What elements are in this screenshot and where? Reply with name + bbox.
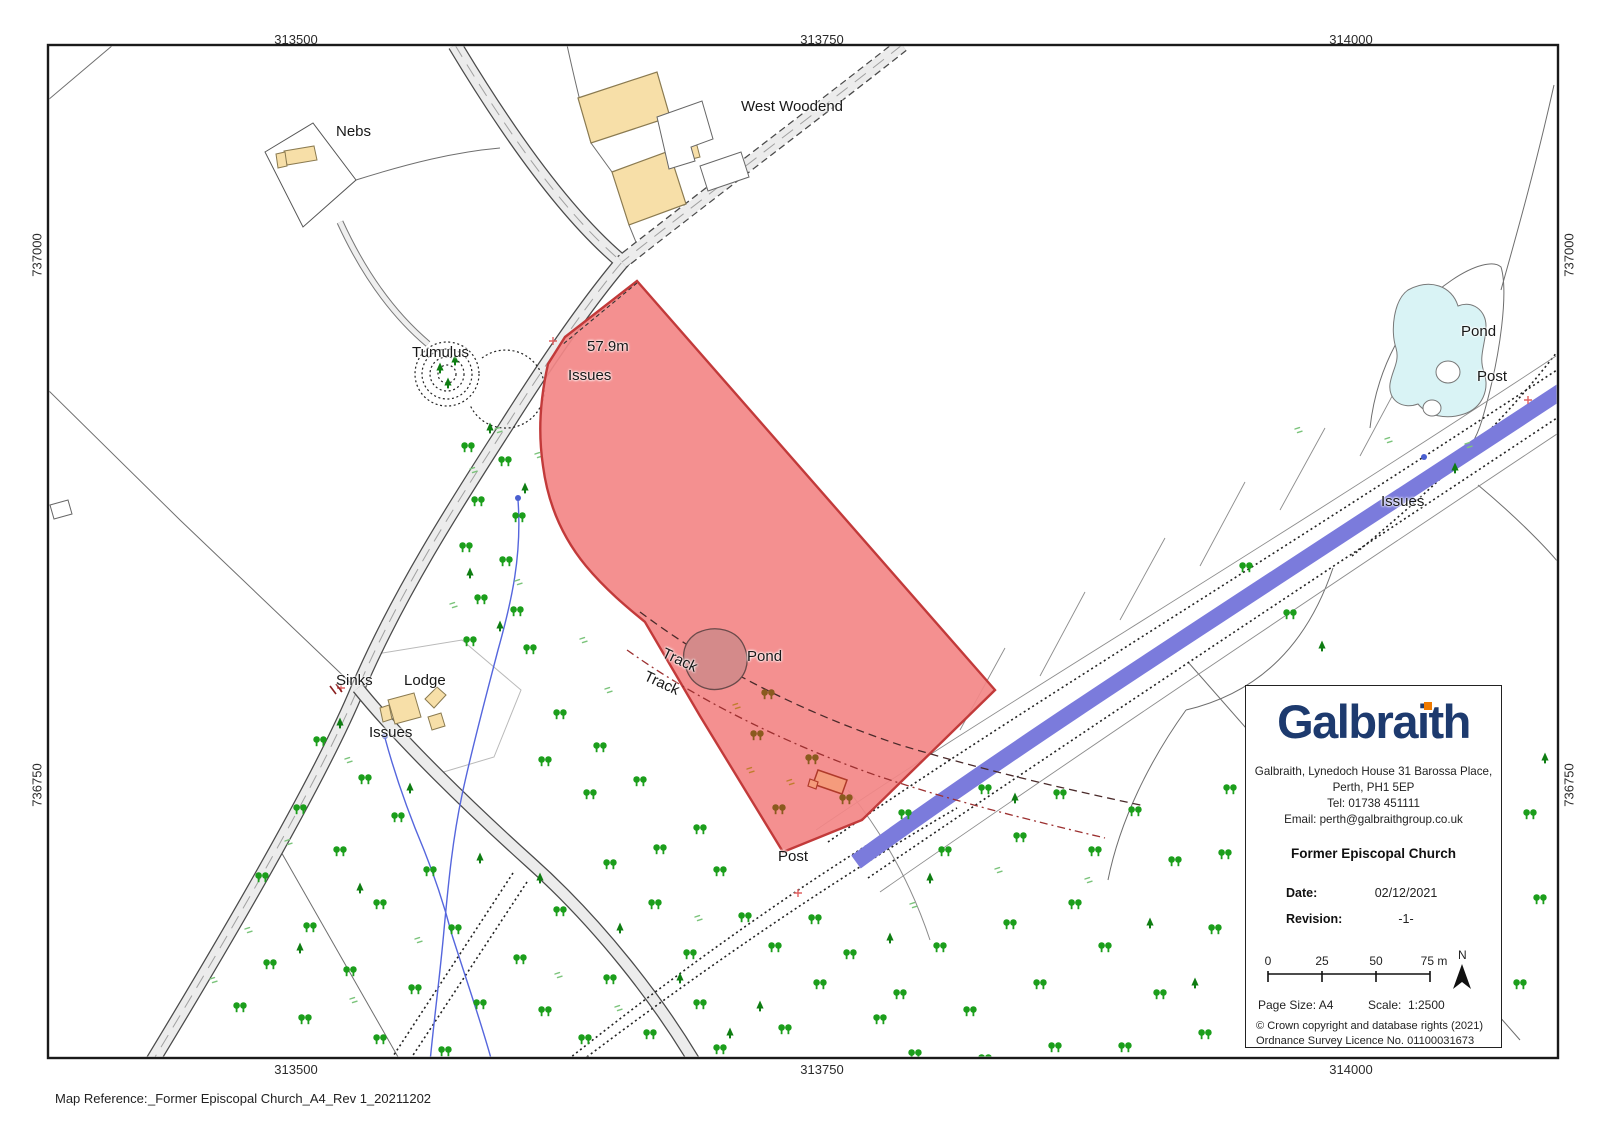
address-line-1: Galbraith, Lynedoch House 31 Barossa Pla… [1246,766,1501,778]
grid-label-top-1: 313500 [274,33,317,46]
address-line-4: Email: perth@galbraithgroup.co.uk [1246,814,1501,826]
address-line-3: Tel: 01738 451111 [1246,798,1501,810]
scalebar-tick-75: 75 m [1421,954,1448,968]
grid-label-top-3: 314000 [1329,33,1372,46]
copyright-line-1: © Crown copyright and database rights (2… [1256,1019,1496,1034]
page-size: Page Size: A4 [1258,998,1333,1012]
address-line-2: Perth, PH1 5EP [1246,782,1501,794]
place-label-tumulus: Tumulus [412,345,469,360]
place-label-lodge: Lodge [404,673,446,688]
small-structure [50,500,72,519]
scalebar-tick-25: 25 [1315,954,1328,968]
place-label-west-woodend: West Woodend [741,99,843,114]
north-arrow-icon [1450,962,1474,992]
grid-label-left-1: 737000 [31,233,44,276]
scale-value: 1:2500 [1408,998,1445,1012]
place-label-nebs: Nebs [336,124,371,139]
date-label: Date: [1286,886,1317,900]
date-value: 02/12/2021 [1361,886,1451,900]
grid-label-bottom-1: 313500 [274,1063,317,1076]
map-title: Former Episcopal Church [1246,846,1501,861]
north-label: N [1458,948,1467,962]
place-label-issues-1: Issues [568,368,611,383]
spot-height-label: 57.9m [587,339,629,354]
pond-right [1390,284,1486,416]
scale-label: Scale: [1368,998,1401,1012]
scalebar-tick-50: 50 [1369,954,1382,968]
info-box: Galbraith Galbraith, Lynedoch House 31 B… [1245,685,1502,1048]
grid-label-right-2: 736750 [1563,763,1576,806]
place-label-pond-1: Pond [747,649,782,664]
grid-label-bottom-3: 314000 [1329,1063,1372,1076]
place-label-issues-3: Issues [1381,494,1424,509]
map-reference-value: _Former Episcopal Church_A4_Rev 1_202112… [148,1091,431,1106]
grid-label-top-2: 313750 [800,33,843,46]
grid-label-bottom-2: 313750 [800,1063,843,1076]
grid-label-right-1: 737000 [1563,233,1576,276]
grid-label-left-2: 736750 [31,763,44,806]
map-page: 313500 313750 314000 313500 313750 31400… [0,0,1600,1131]
brand-logo-orange-dot [1424,702,1432,710]
revision-value: -1- [1361,912,1451,926]
place-label-post-2: Post [1477,369,1507,384]
revision-label: Revision: [1286,912,1342,926]
place-label-pond-2: Pond [1461,324,1496,339]
brand-logo: Galbraith [1246,694,1501,749]
place-label-sinks: Sinks [336,673,373,688]
map-reference-label: Map Reference: [55,1091,148,1106]
place-label-issues-2: Issues [369,725,412,740]
scalebar-tick-0: 0 [1265,954,1272,968]
copyright-line-2: Ordnance Survey Licence No. 01100031673 [1256,1034,1496,1049]
place-label-post-1: Post [778,849,808,864]
